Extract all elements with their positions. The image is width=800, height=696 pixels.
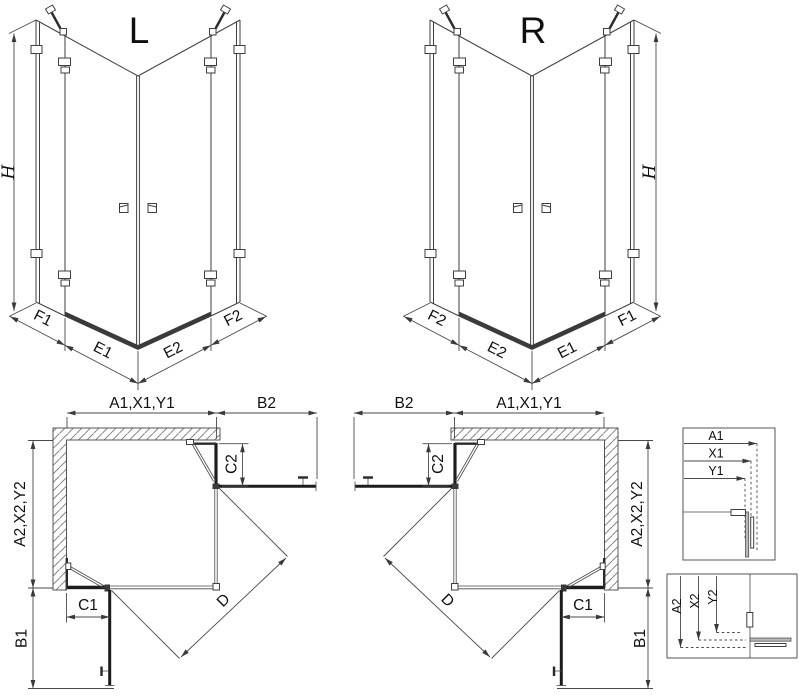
hinge-pivot-top: [452, 484, 459, 490]
dim-f2: F2: [425, 307, 449, 330]
dimension-a2: A2,X2,Y2: [12, 441, 53, 589]
dim-fixed-side: C2: [224, 454, 241, 474]
hinges: [59, 58, 217, 286]
dim-door-top: B2: [395, 395, 414, 412]
dim-depth-side: A2,X2,Y2: [629, 481, 646, 547]
glass-profile-section: [747, 613, 791, 647]
dim-fixed-bottom: C1: [573, 597, 593, 614]
dimension-b1: B1: [557, 588, 653, 689]
dim-diagonal: D: [437, 591, 457, 611]
dim-fixed-bottom: C1: [78, 597, 98, 614]
dimension-diagonal: D: [383, 489, 559, 659]
dim-fixed-side: C2: [430, 454, 447, 474]
dim-e2: E2: [484, 339, 509, 363]
dim-door-bottom: B1: [632, 629, 649, 648]
dimension-b1: B1: [14, 588, 115, 689]
dimension-height: H: [634, 20, 661, 317]
corner-post: [213, 584, 220, 591]
dim-f1: F1: [615, 307, 639, 330]
enclosure-glass: [67, 443, 220, 592]
dimension-height: H: [0, 20, 36, 317]
open-door-top: [355, 478, 452, 492]
dimension-c2: C2: [219, 444, 249, 486]
hinge-pivot-top: [213, 484, 220, 490]
walls-hatched: [451, 428, 618, 590]
dim-width-top: A1,X1,Y1: [109, 395, 175, 412]
dim-depth-side: A2,X2,Y2: [12, 481, 29, 547]
dim-width-top: A1,X1,Y1: [496, 395, 562, 412]
dim-e1: E1: [555, 339, 580, 363]
plan-view-left: A1,X1,Y1 B2 C2 A2,X2,Y2: [12, 395, 317, 689]
dimension-diagonal: D: [112, 489, 288, 659]
corner-post: [452, 584, 459, 591]
detail-box-widths: A1 X1 Y1: [683, 428, 775, 560]
dim-door-bottom: B1: [14, 629, 31, 648]
view-title-right: R: [520, 10, 547, 51]
dim-f2: F2: [221, 307, 245, 330]
enclosure-glass: [452, 443, 605, 592]
dimension-a2: A2,X2,Y2: [618, 441, 653, 589]
dimension-c1: C1: [561, 593, 604, 623]
hinges: [454, 58, 612, 286]
view-title-left: L: [129, 10, 150, 51]
detail-label-a2: A2: [670, 598, 684, 613]
walls-hatched: [53, 428, 220, 590]
detail-label-x2: X2: [688, 593, 702, 608]
height-label: H: [640, 163, 660, 180]
glass-profile-section: [731, 510, 754, 558]
detail-box-depths: A2 X2 Y2: [667, 574, 797, 658]
iso-view-right: H F2 E2 E1 F1 R: [403, 5, 661, 390]
wall-brackets: [31, 46, 245, 258]
door-handles: [120, 204, 157, 213]
wall-brackets: [425, 46, 639, 258]
drawing-canvas: H F1 E1 E2 F2 L: [0, 0, 800, 696]
iso-view-left: H F1 E1 E2 F2 L: [0, 5, 267, 390]
detail-label-y1: Y1: [708, 464, 723, 478]
open-door-bottom: [554, 590, 566, 686]
plan-view-right: B2 A1,X1,Y1 C2 A2,X2,Y2: [354, 395, 653, 689]
dim-e2: E2: [161, 339, 186, 363]
dimension-c2: C2: [423, 444, 453, 486]
dim-e1: E1: [90, 339, 115, 363]
height-label: H: [0, 163, 19, 180]
detail-label-a1: A1: [708, 429, 723, 443]
dim-diagonal: D: [214, 591, 234, 611]
dim-f1: F1: [31, 307, 55, 330]
support-bars: [66, 440, 216, 589]
dimension-c1: C1: [67, 593, 110, 623]
detail-label-x1: X1: [708, 447, 723, 461]
detail-label-y2: Y2: [706, 589, 720, 604]
open-door-bottom: [102, 590, 115, 686]
door-handles: [514, 204, 551, 213]
dim-door-top: B2: [257, 395, 276, 412]
support-bars: [456, 440, 606, 589]
open-door-top: [219, 478, 316, 492]
shower-enclosure-dimension-drawing: H F1 E1 E2 F2 L: [0, 0, 800, 696]
